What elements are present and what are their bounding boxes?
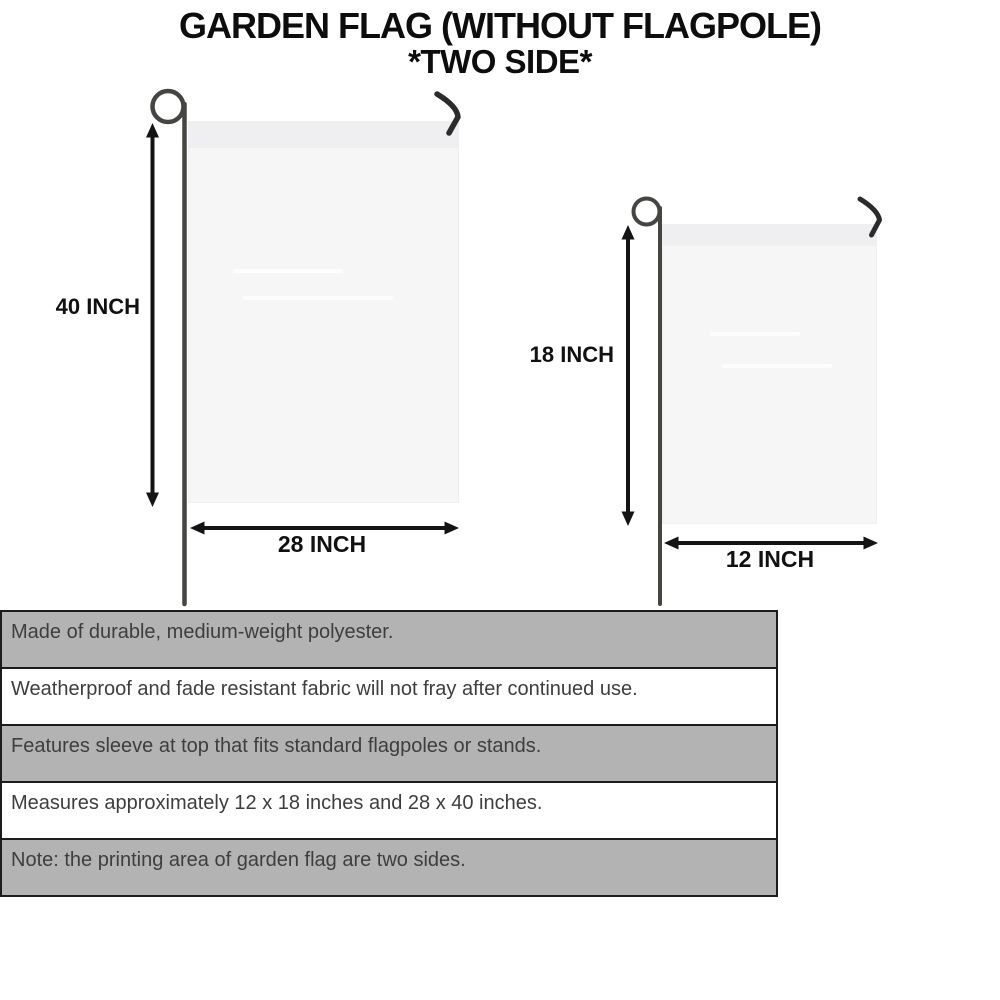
title-line-1: GARDEN FLAG (WITHOUT FLAGPOLE) — [0, 6, 1000, 46]
large-flag-width-label: 28 INCH — [222, 531, 422, 557]
feature-row-weatherproof: Weatherproof and fade resistant fabric w… — [2, 669, 776, 726]
small-flag-preview — [662, 224, 877, 524]
features-table: Made of durable, medium-weight polyester… — [0, 610, 778, 897]
fabric-highlight — [710, 332, 800, 336]
fabric-highlight — [243, 296, 393, 300]
title-line-2: *TWO SIDE* — [0, 44, 1000, 80]
small-flag-height-label: 18 INCH — [492, 342, 614, 368]
feature-row-material: Made of durable, medium-weight polyester… — [2, 612, 776, 669]
large-flag-height-label: 40 INCH — [18, 294, 140, 320]
garden-flag-size-infographic: GARDEN FLAG (WITHOUT FLAGPOLE) *TWO SIDE… — [0, 0, 1000, 1000]
feature-row-note: Note: the printing area of garden flag a… — [2, 840, 776, 895]
large-flagpole-icon — [153, 91, 185, 604]
large-flag-sleeve — [188, 121, 459, 148]
small-flag-sleeve — [662, 224, 877, 246]
fabric-highlight — [722, 364, 832, 368]
small-height-arrow — [622, 225, 635, 526]
small-flagpole-icon — [634, 199, 661, 605]
feature-row-measures: Measures approximately 12 x 18 inches an… — [2, 783, 776, 840]
fabric-highlight — [233, 269, 343, 273]
feature-row-sleeve: Features sleeve at top that fits standar… — [2, 726, 776, 783]
small-flag-width-label: 12 INCH — [670, 546, 870, 572]
large-flag-preview — [188, 121, 459, 503]
large-height-arrow — [146, 123, 159, 507]
